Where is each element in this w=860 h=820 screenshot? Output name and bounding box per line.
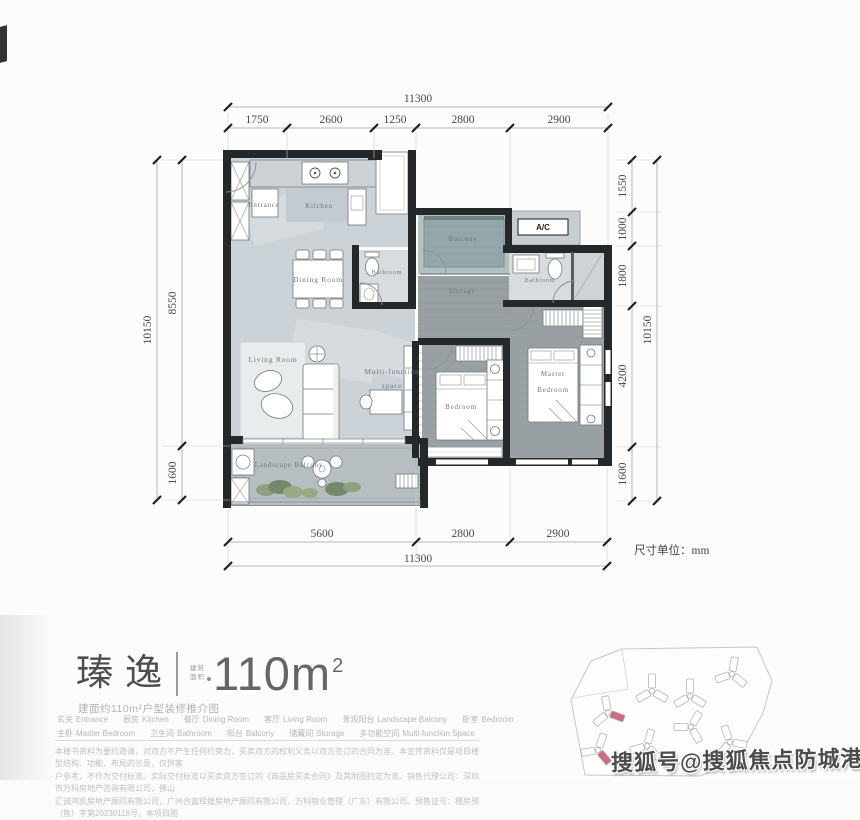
legend-en: Multi-function Space [402, 729, 474, 738]
dim-unit-note: 尺寸单位：mm [634, 543, 709, 557]
legend-cn: 阳台 [227, 729, 243, 738]
legend-en: Bedroom [481, 715, 513, 724]
dim-left-total: 10150 [142, 315, 154, 344]
legend-item: 餐厅Dining Room [184, 714, 249, 725]
legend: 玄关Entrance 厨房Kitchen 餐厅Dining Room 客厅Liv… [57, 714, 472, 742]
legend-item: 多功能空间Multi-function Space [359, 728, 474, 739]
legend-cn: 餐厅 [184, 715, 200, 724]
legend-item: 玄关Entrance [57, 714, 108, 725]
toilet-tank-icon [365, 252, 379, 257]
legend-item: 阳台Balcony [227, 728, 274, 739]
toilet-tank-icon [546, 253, 564, 258]
legend-en: Storage [316, 729, 344, 738]
room-label-living: Living Room [248, 355, 297, 364]
floor-plan-drawing: Entrance Kitchen Dining Room Bathroom Ba… [0, 0, 860, 620]
legend-en: Kitchen [142, 715, 169, 724]
legend-item: 储藏间Storage [289, 728, 344, 739]
dim-right-1: 1550 [617, 174, 629, 197]
room-label-balcony: Balcony [449, 235, 478, 243]
area-badge-line2: 面积 [190, 674, 205, 682]
dim-right-2: 1000 [617, 217, 629, 240]
sofa [303, 364, 339, 440]
divider-rule [55, 740, 479, 741]
dim-top-2: 2600 [320, 114, 343, 126]
legend-en: Landscape Balcony [377, 715, 447, 724]
dim-right-5: 1600 [617, 462, 629, 485]
dim-bottom-total: 11300 [404, 553, 433, 565]
disclaimer-line-3: 汇诚鸿凯房地产顾问有限公司，广州合富辉煌房地产顾问有限公司，万科物业管理（广东）… [55, 796, 479, 820]
dim-top-5: 2900 [548, 114, 571, 126]
stove-icon [302, 162, 348, 184]
legend-en: Dining Room [203, 715, 249, 724]
nightstand-icon [491, 365, 500, 374]
area-number: 110m [213, 647, 331, 700]
nightstand-icon [587, 349, 595, 357]
room-label-multifunction-1: Multi-function [364, 367, 419, 376]
photo-edge-shade [0, 615, 55, 780]
desk-chair [360, 395, 372, 409]
room-label-entrance: Entrance [248, 201, 279, 209]
dim-top-1: 1750 [246, 114, 269, 126]
area-superscript: 2 [332, 655, 344, 677]
disclaimer-line-2: 户参考，不作为交付标准。实际交付标准以买卖双方签订的《商品房买卖合同》及其附图约… [55, 771, 479, 796]
room-label-dining: Dining Room [293, 275, 343, 284]
watermark: 搜狐号@搜狐焦点防城港站 [611, 741, 860, 778]
sliding-door [243, 438, 405, 444]
legend-row-1: 玄关Entrance 厨房Kitchen 餐厅Dining Room 客厅Liv… [57, 714, 472, 725]
dim-bottom-1: 5600 [311, 528, 334, 540]
radiator-icon [456, 346, 502, 361]
dim-right-4: 4200 [617, 364, 629, 387]
legend-cn: 主卧 [57, 729, 73, 738]
master-furniture [528, 345, 602, 425]
legend-cn: 储藏间 [289, 729, 313, 738]
side-table [309, 346, 325, 362]
planter-box [396, 474, 418, 488]
room-label-bathroom1: Bathroom [372, 270, 402, 276]
dim-right-total: 10150 [642, 315, 654, 344]
title-block: 瑧逸 建筑 面积 110m2 [76, 650, 344, 697]
toilet-icon [548, 259, 562, 279]
floor-plan-page: Entrance Kitchen Dining Room Bathroom Ba… [0, 0, 860, 780]
legend-item: 客厅Living Room [264, 714, 327, 725]
area-badge-line1: 建筑 [190, 665, 205, 673]
legend-item: 主卧Master Bedroom [57, 728, 135, 739]
dim-left-2: 1600 [167, 461, 179, 484]
legend-item: 卧室Bedroom [462, 714, 513, 725]
legend-cn: 卫生间 [150, 729, 174, 738]
area-badge: 建筑 面积 [190, 665, 211, 682]
dim-top-3: 1250 [384, 114, 407, 126]
room-label-landscape-balcony: Landscape Balcony [255, 461, 324, 469]
disclaimer: 本楼书资料为要约邀请，对双方不产生任何约束力，买卖双方的权利义务以双方签订的合同… [55, 746, 479, 820]
legend-cn: 玄关 [57, 715, 73, 724]
room-label-multifunction-2: space [382, 381, 403, 390]
kitchen-bay-window [376, 152, 408, 214]
badge-dot [207, 677, 211, 681]
legend-en: Entrance [76, 715, 108, 724]
legend-cn: 厨房 [123, 715, 139, 724]
dim-right-3: 1800 [617, 264, 629, 287]
legend-row-2: 主卧Master Bedroom 卫生间Bathroom 阳台Balcony 储… [57, 728, 472, 739]
area-value: 110m2 [213, 650, 344, 697]
nightstand-icon [587, 415, 595, 423]
legend-item: 卫生间Bathroom [150, 728, 212, 739]
legend-cn: 卧室 [462, 715, 478, 724]
room-label-ac: A/C [536, 223, 550, 232]
dim-top-4: 2800 [452, 114, 475, 126]
room-label-bedroom: Bedroom [445, 403, 477, 411]
legend-item: 厨房Kitchen [123, 714, 169, 725]
legend-en: Bathroom [177, 729, 212, 738]
room-label-storage: Storage [449, 287, 476, 295]
room-label-master-1: Master [541, 370, 565, 378]
legend-en: Living Room [283, 715, 327, 724]
project-name: 瑧逸 [76, 655, 174, 692]
legend-cn: 客厅 [264, 715, 280, 724]
legend-cn: 多功能空间 [359, 729, 399, 738]
dim-bottom-3: 2900 [547, 528, 570, 540]
legend-item: 景观阳台Landscape Balcony [342, 714, 447, 725]
balcony-rail [424, 216, 504, 220]
legend-en: Balcony [246, 729, 274, 738]
room-label-bathroom2: Bathroom [525, 278, 555, 284]
shower-tray-icon [360, 284, 378, 304]
legend-cn: 景观阳台 [342, 715, 374, 724]
nightstand-icon [491, 427, 500, 436]
washing-machine-icon [232, 449, 254, 475]
dim-top-total: 11300 [404, 93, 433, 105]
master-bed [528, 348, 578, 422]
legend-en: Master Bedroom [76, 729, 135, 738]
room-label-kitchen: Kitchen [305, 202, 333, 210]
dim-left-1: 8550 [167, 291, 179, 314]
dim-bottom-2: 2800 [452, 528, 475, 540]
room-label-master-2: Bedroom [537, 386, 569, 394]
disclaimer-line-1: 本楼书资料为要约邀请，对双方不产生任何约束力，买卖双方的权利义务以双方签订的合同… [55, 746, 479, 771]
title-divider [176, 652, 178, 696]
